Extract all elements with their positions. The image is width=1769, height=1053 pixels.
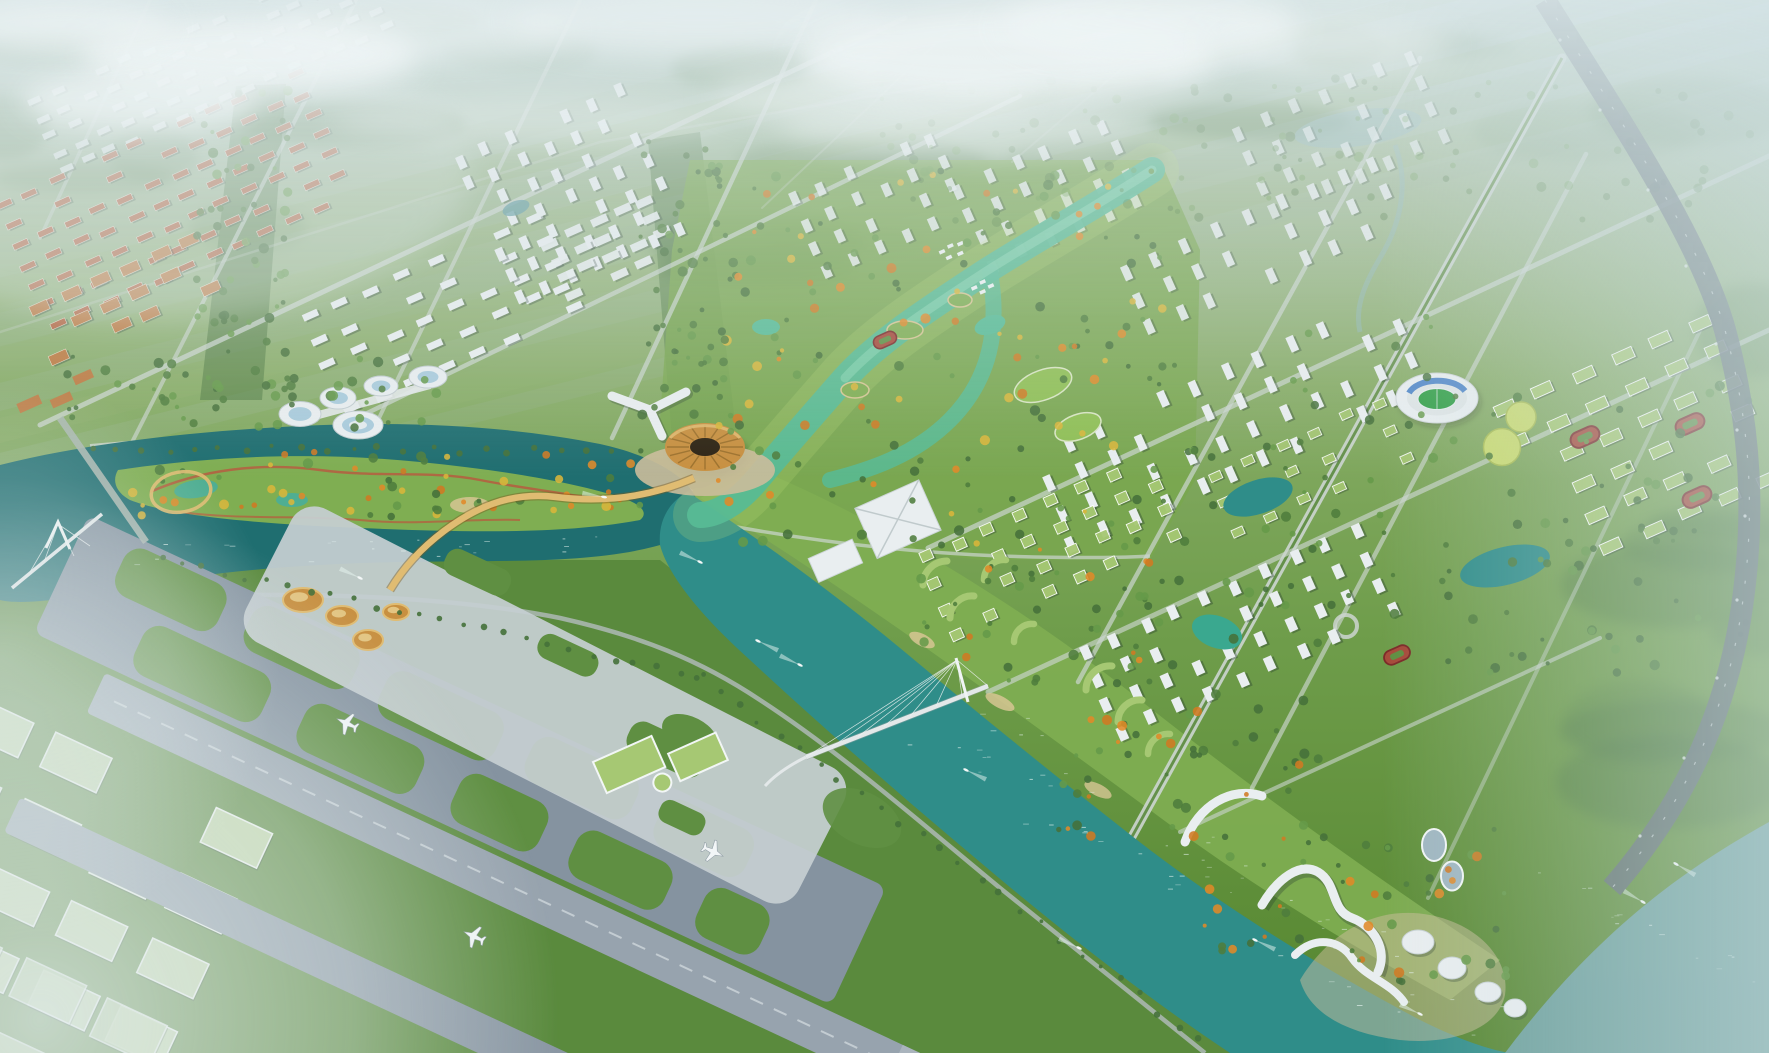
tree [1316,540,1323,547]
roadside-tree [417,612,422,617]
roadside-tree [819,762,824,767]
tree [938,542,945,549]
tree [1299,821,1308,830]
tree [1121,543,1128,550]
tree [1295,761,1303,769]
roadside-tree [879,806,884,811]
tree [1350,948,1355,953]
tree [966,633,973,640]
tree [1288,583,1294,589]
tree [1116,740,1120,744]
roadside-tree [860,791,865,796]
roadside-tree [481,624,488,631]
tree [870,481,876,487]
tree [1263,935,1267,939]
tree [387,513,395,521]
roadside-tree [1195,1035,1202,1042]
tree [1282,908,1291,917]
tree [1244,792,1249,797]
tree [1132,731,1139,738]
tree [1244,587,1254,597]
tree [1155,618,1164,627]
tree [252,502,258,508]
tree [1056,827,1061,832]
tree [925,624,930,629]
roadside-tree [630,660,636,666]
tree [433,506,442,515]
masterplan-svg [0,0,1769,1053]
tree [954,525,964,535]
tree [1362,841,1370,849]
tree [1228,945,1237,954]
tree [1295,934,1304,943]
tree [910,535,917,542]
tree [1066,516,1071,521]
tree [738,537,748,547]
tree [1331,509,1340,518]
tree [299,493,306,500]
tree [1132,495,1141,504]
tree [1262,525,1270,533]
tree [1141,592,1149,600]
tree [1084,775,1092,783]
roadside-tree [737,701,744,708]
tree [1211,689,1221,699]
tree [1136,657,1143,664]
tree [637,502,644,509]
tree [985,565,992,572]
tree [1168,660,1177,669]
roadside-tree [1177,1025,1184,1032]
tree [949,511,955,517]
tree [1161,499,1166,504]
tree [1166,739,1176,749]
tree [366,495,372,501]
tree [1203,924,1207,928]
tree [1169,824,1175,830]
tree [1209,501,1217,509]
tree [857,530,867,540]
tree [1145,559,1153,567]
tree [1102,715,1112,725]
tree [1306,840,1311,845]
tree [1282,837,1286,841]
roadside-tree [895,821,901,827]
tree [1156,734,1162,740]
roadside-tree [955,861,959,865]
roadside-tree [921,831,926,836]
tree [1007,678,1011,682]
tree [1028,571,1034,577]
tree [1341,880,1345,884]
tree [1300,859,1306,865]
tree [1336,863,1341,868]
roadside-tree [936,844,943,851]
tree [379,485,385,491]
tree [1131,651,1136,656]
tree [550,507,557,514]
tree [1363,921,1373,931]
tree [1011,565,1018,572]
roadside-tree [1154,1011,1160,1017]
tree [766,491,774,499]
roadside-tree [373,605,380,612]
tree [1281,511,1291,521]
tree [1193,707,1202,716]
tree [1146,679,1152,685]
tree [1229,634,1239,644]
tree [1165,773,1169,777]
roadside-tree [437,616,443,622]
tree [1314,754,1323,763]
tree [1249,732,1259,742]
tree [758,536,768,546]
tree [1015,582,1024,591]
tree [1247,939,1255,947]
roadside-tree [694,675,700,681]
tree [953,602,957,606]
tree [1327,601,1335,609]
tree [1083,509,1087,513]
tree [1262,863,1266,867]
roadside-tree [1018,909,1023,914]
tree [1189,831,1199,841]
tree [1281,601,1289,609]
cloud [1210,19,1450,71]
tree [1159,579,1164,584]
tree [1313,639,1322,648]
tree [987,621,992,626]
tree [1116,610,1124,618]
tree [965,482,970,487]
tree [1346,593,1351,598]
tree [1180,537,1189,546]
tree [1088,716,1095,723]
tree [1174,576,1184,586]
tree [1059,780,1067,788]
tree [1223,578,1231,586]
tree [1009,496,1015,502]
roadside-tree [798,745,803,750]
tree [568,503,574,509]
roadside-tree [1081,955,1085,959]
roadside-tree [1137,990,1142,995]
tree [1087,794,1091,798]
tree [1086,572,1095,581]
tree [1263,586,1269,592]
roadside-tree [613,658,619,664]
tree [724,497,733,506]
roadside-tree [755,721,759,725]
tree [783,529,793,539]
roadside-tree [544,642,550,648]
tree [1072,820,1082,830]
tree [1058,505,1065,512]
roadside-tree [653,663,660,670]
tree [1066,826,1071,831]
tree [1113,679,1121,687]
roadside-tree [980,877,986,883]
tree [1205,884,1215,894]
tree [1173,799,1183,809]
roadside-tree [500,629,506,635]
tree [1068,650,1078,660]
tree [1092,604,1101,613]
tree [1299,696,1309,706]
roadside-tree [679,671,685,677]
tree [432,490,440,498]
tree [461,500,466,505]
roadside-tree [779,734,785,740]
roadside-tree [995,889,1002,896]
tree [1283,766,1288,771]
tree [1274,728,1279,733]
tree [1096,747,1103,754]
tree [1108,520,1114,526]
roadside-tree [1099,965,1103,969]
tree [1144,602,1152,610]
tree [1128,663,1135,670]
tree [1308,545,1316,553]
tree [1254,704,1263,713]
roadside-tree [566,647,572,653]
tree [367,512,373,518]
roadside-tree [1118,975,1124,981]
tree [909,497,915,503]
roadside-tree [397,610,402,615]
tree [477,499,482,504]
tree [1371,890,1379,898]
tree [1117,721,1127,731]
tree [1093,625,1101,633]
tree [1259,602,1264,607]
tree [1054,570,1059,575]
tree [1031,679,1038,686]
tree [919,637,928,646]
tree [916,574,926,584]
cloud [20,70,260,130]
tree [1213,904,1222,913]
tree [962,653,970,661]
tree [347,507,355,515]
roadside-tree [1040,919,1044,923]
tree [1133,644,1139,650]
tree [279,489,288,498]
tree [1133,537,1140,544]
cloud [780,104,1140,156]
right-haze [1380,0,1769,1053]
tree [1232,740,1238,746]
tree [922,620,926,624]
tree [1222,834,1228,840]
tree [1357,958,1361,962]
roadside-tree [351,595,356,600]
tree [1073,789,1082,798]
tree [239,505,243,509]
tree [1015,530,1024,539]
tree [1033,606,1041,614]
tree [1346,877,1355,886]
tree [985,578,992,585]
tree [1190,751,1198,759]
roadside-tree [718,689,723,694]
tree [1029,576,1035,582]
tree [393,501,402,510]
tree [1004,663,1013,672]
tree [1320,833,1328,841]
tree [974,540,980,546]
tree [983,630,991,638]
tree [1122,586,1127,591]
tree [606,489,611,494]
cloud [330,96,730,144]
roadside-tree [524,636,529,641]
tree [399,487,406,494]
tree [1074,753,1078,757]
aerial-masterplan-rendering [0,0,1769,1053]
tree [288,499,294,505]
tree [1038,548,1042,552]
roadside-tree [461,623,466,628]
tree [1218,942,1226,950]
tree [769,502,776,509]
tree [1285,787,1292,794]
tree [829,491,835,497]
tree [1299,749,1309,759]
tree [1302,490,1306,494]
roadside-tree [833,777,839,783]
tree [1290,531,1296,537]
tree [1124,751,1131,758]
roadside-tree [591,654,596,659]
tree [1226,852,1235,861]
tree [978,508,983,513]
roadside-tree [701,672,706,677]
tree [267,485,275,493]
